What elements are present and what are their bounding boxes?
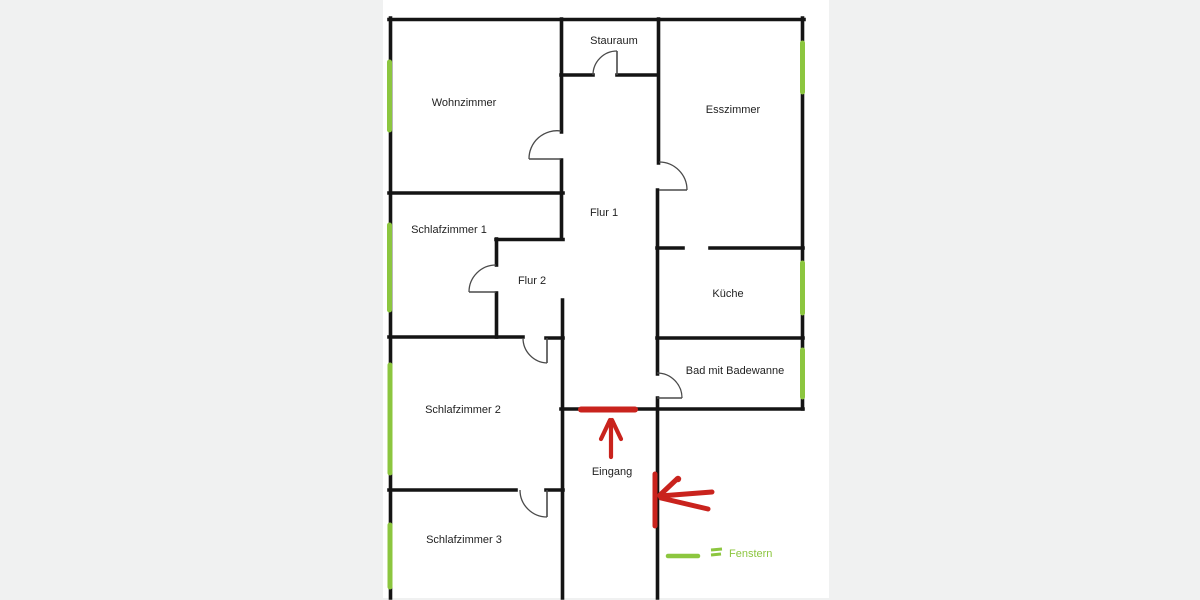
room-label: Eingang: [592, 466, 632, 478]
legend-equals-mark: [711, 554, 721, 555]
room-label: Schlafzimmer 3: [426, 534, 502, 546]
floor-plan-svg: WohnzimmerStauraumEsszimmerSchlafzimmer …: [0, 0, 1200, 600]
room-label: Wohnzimmer: [432, 97, 497, 109]
proposed-door-arrow-dot: [675, 476, 681, 482]
room-label: Esszimmer: [706, 104, 761, 116]
room-label: Schlafzimmer 1: [411, 224, 487, 236]
room-label: Flur 2: [518, 275, 546, 287]
room-label: Bad mit Badewanne: [686, 365, 784, 377]
room-label: Schlafzimmer 2: [425, 404, 501, 416]
room-label: Flur 1: [590, 207, 618, 219]
legend-window-label: Fenstern: [729, 548, 772, 560]
legend-equals-mark: [711, 549, 722, 550]
room-label: Küche: [712, 288, 743, 300]
paper: [383, 0, 829, 598]
room-label: Stauraum: [590, 35, 638, 47]
